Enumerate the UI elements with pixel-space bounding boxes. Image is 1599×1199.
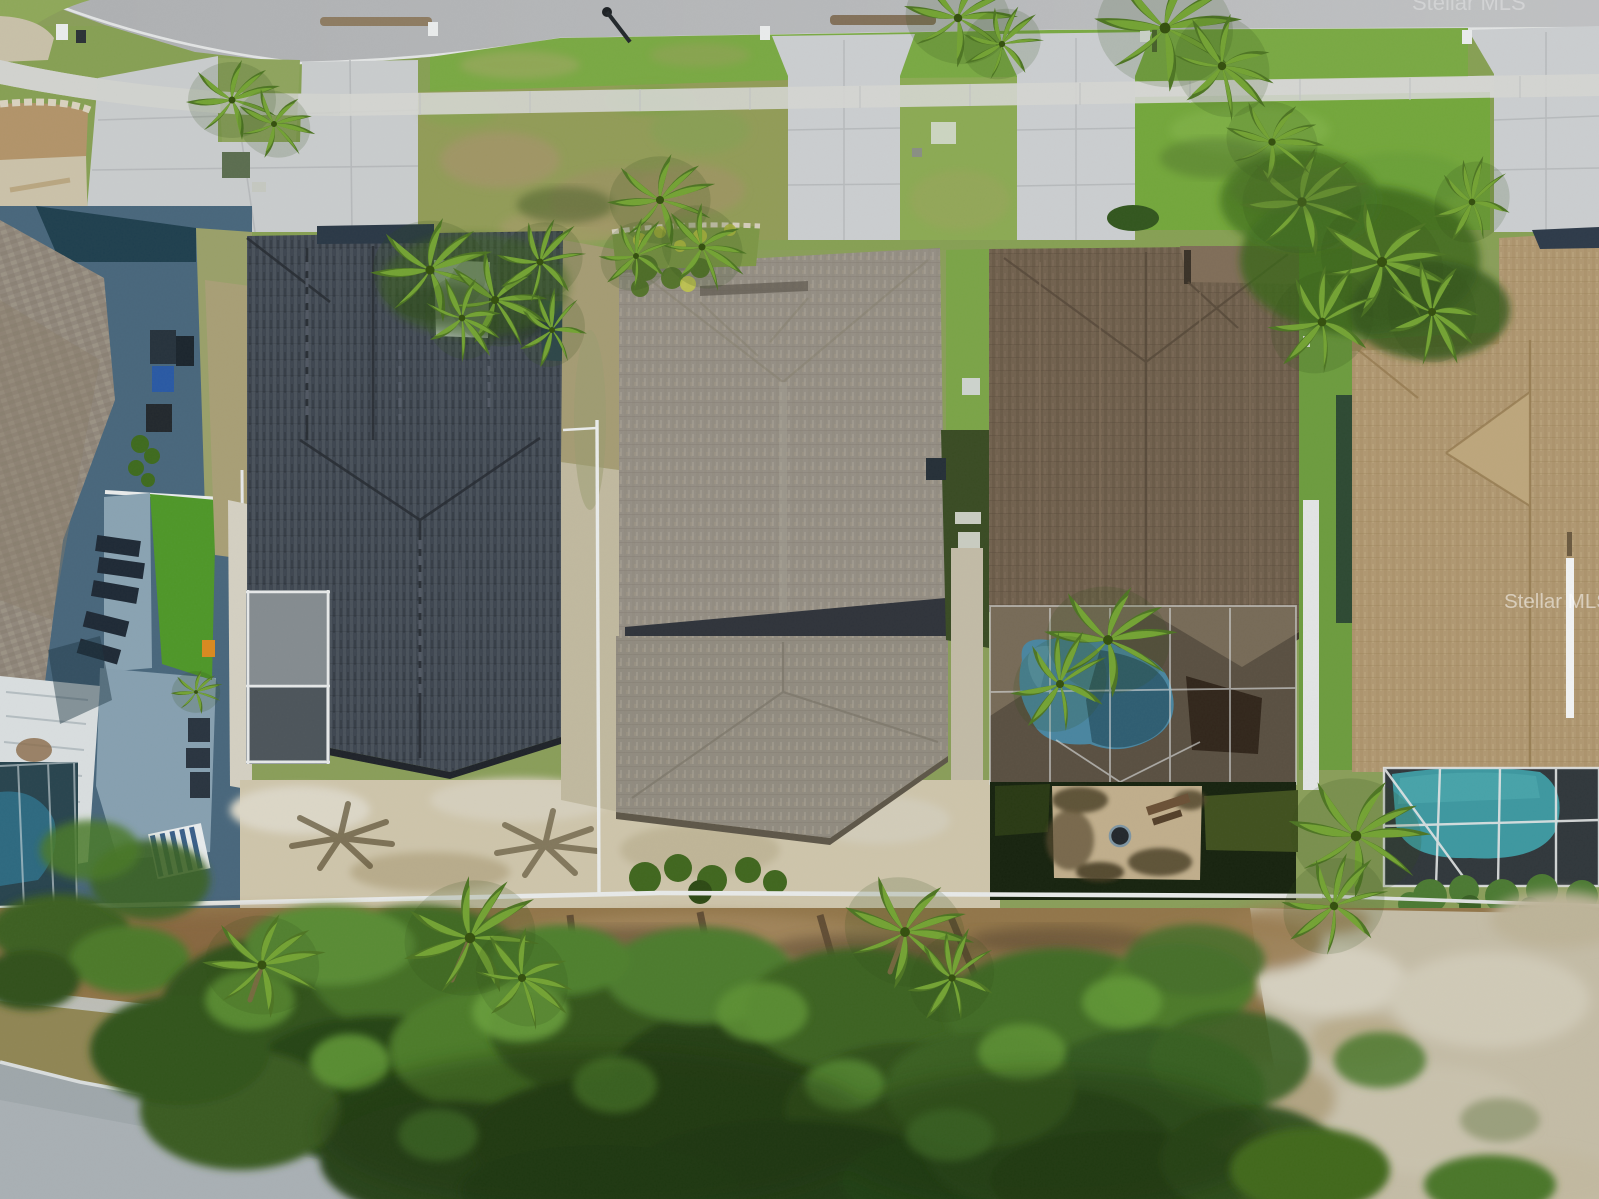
svg-text:Stellar MLS: Stellar MLS	[1504, 590, 1599, 613]
svg-text:Stellar MLS: Stellar MLS	[1412, 0, 1526, 15]
